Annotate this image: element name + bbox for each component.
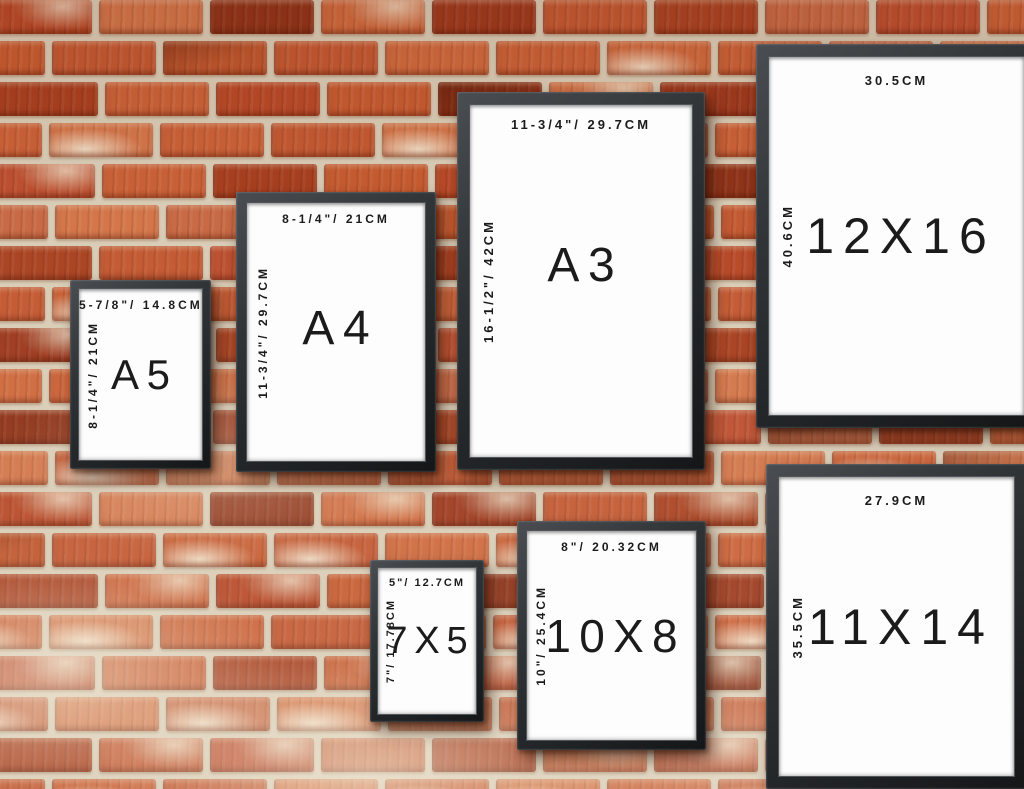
brick: [271, 615, 375, 649]
brick: [163, 533, 267, 567]
frame-a4-size-label: A4: [247, 195, 425, 461]
frame-10x8: 8"/ 20.32CM 10"/ 25.4CM 10X8: [517, 521, 706, 750]
brick: [102, 656, 206, 690]
brick: [210, 738, 314, 772]
brick: [274, 41, 378, 75]
brick: [0, 205, 48, 239]
brick: [987, 0, 1024, 34]
brick: [0, 574, 98, 608]
brick: [321, 0, 425, 34]
brick: [274, 533, 378, 567]
frame-a5: 5-7/8"/ 14.8CM 8-1/4"/ 21CM A5: [70, 280, 211, 469]
brick: [99, 738, 203, 772]
brick: [271, 123, 375, 157]
frame-a4: 8-1/4"/ 21CM 11-3/4"/ 29.7CM A4: [236, 192, 436, 472]
frame-7x5-size-label: 7X5: [378, 568, 476, 714]
brick: [876, 0, 980, 34]
brick: [607, 779, 711, 789]
frame-10x8-size-label: 10X8: [527, 531, 696, 740]
brick: [385, 41, 489, 75]
brick: [102, 164, 206, 198]
frame-a3-size-label: A3: [470, 73, 692, 457]
frame-a3-paper: 11-3/4"/ 29.7CM 16-1/2"/ 42CM A3: [470, 105, 692, 457]
brick: [0, 287, 45, 321]
brick: [160, 615, 264, 649]
brick: [0, 369, 42, 403]
brick: [213, 656, 317, 690]
brick: [0, 779, 45, 789]
brick: [210, 0, 314, 34]
brick: [210, 492, 314, 526]
brick-row: [0, 0, 1024, 34]
frame-11x14-paper: 27.9CM 35.5CM 11X14: [779, 477, 1014, 776]
frame-7x5: 5"/ 12.7CM 7"/ 17.78CM 7X5: [370, 560, 484, 722]
brick: [99, 492, 203, 526]
brick: [765, 0, 869, 34]
brick: [0, 164, 95, 198]
frame-12x16-paper: 30.5CM 40.6CM 12X16: [769, 57, 1024, 415]
brick: [52, 779, 156, 789]
brick: [0, 82, 98, 116]
frame-7x5-paper: 5"/ 12.7CM 7"/ 17.78CM 7X5: [378, 568, 476, 714]
brick: [543, 0, 647, 34]
brick: [496, 779, 600, 789]
brick: [321, 738, 425, 772]
brick: [163, 779, 267, 789]
frame-a5-paper: 5-7/8"/ 14.8CM 8-1/4"/ 21CM A5: [79, 289, 202, 460]
brick: [327, 82, 431, 116]
brick: [321, 492, 425, 526]
brick: [607, 41, 711, 75]
brick: [52, 533, 156, 567]
brick: [0, 697, 48, 731]
frame-11x14-size-label: 11X14: [779, 477, 1014, 776]
brick: [105, 574, 209, 608]
brick: [0, 656, 95, 690]
brick: [0, 738, 92, 772]
brick: [55, 205, 159, 239]
brick: [0, 533, 45, 567]
brick: [55, 697, 159, 731]
brick: [49, 123, 153, 157]
brick: [654, 0, 758, 34]
brick: [216, 82, 320, 116]
brick: [52, 41, 156, 75]
frame-a3: 11-3/4"/ 29.7CM 16-1/2"/ 42CM A3: [457, 92, 705, 470]
brick: [0, 492, 92, 526]
frame-10x8-paper: 8"/ 20.32CM 10"/ 25.4CM 10X8: [527, 531, 696, 740]
brick: [160, 123, 264, 157]
frame-12x16-size-label: 12X16: [769, 57, 1024, 415]
frame-12x16: 30.5CM 40.6CM 12X16: [756, 44, 1024, 428]
brick: [432, 0, 536, 34]
brick: [0, 123, 42, 157]
brick: [99, 0, 203, 34]
frame-a5-size-label: A5: [79, 289, 202, 460]
brick: [277, 697, 381, 731]
frame-a4-paper: 8-1/4"/ 21CM 11-3/4"/ 29.7CM A4: [247, 203, 425, 461]
brick: [0, 246, 92, 280]
brick: [496, 41, 600, 75]
brick: [385, 779, 489, 789]
brick: [0, 451, 48, 485]
brick: [105, 82, 209, 116]
brick: [274, 779, 378, 789]
brick: [163, 41, 267, 75]
brick: [166, 697, 270, 731]
brick: [0, 615, 42, 649]
brick: [0, 0, 92, 34]
brick: [0, 41, 45, 75]
brick: [99, 246, 203, 280]
brick: [216, 574, 320, 608]
brick: [49, 615, 153, 649]
frame-11x14: 27.9CM 35.5CM 11X14: [766, 464, 1024, 789]
